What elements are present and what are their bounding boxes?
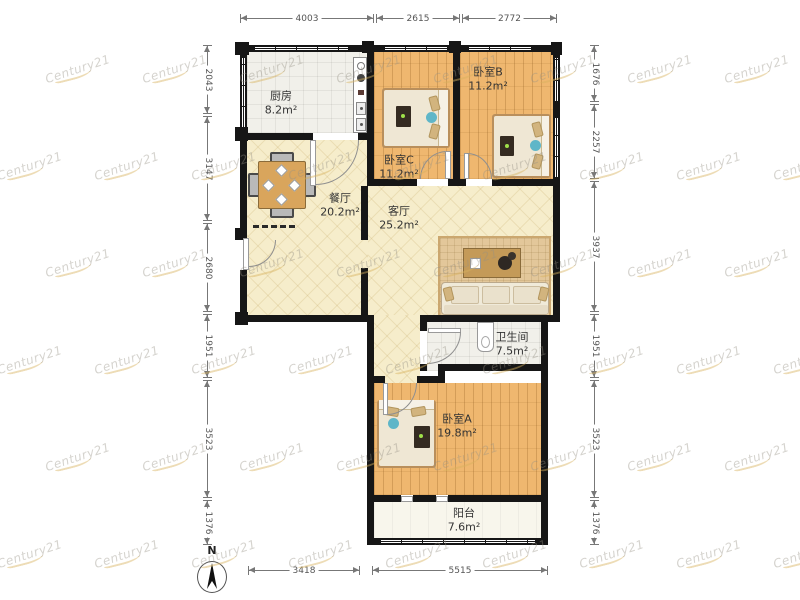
bed-tv-unit	[414, 426, 430, 448]
dim-right-5: 3523	[590, 380, 599, 498]
balcony-label: 阳台 7.6m²	[448, 507, 481, 536]
dim-bottom-1: 3418	[248, 566, 360, 575]
watermark-text: Century21	[189, 343, 258, 377]
bedroom-c-area: 11.2m²	[379, 168, 419, 182]
wall	[541, 315, 560, 322]
watermark-text: Century21	[674, 343, 743, 377]
table-decor	[508, 252, 516, 260]
sofa-cushion	[451, 286, 479, 304]
wall	[374, 376, 385, 383]
dim-value: 1951	[203, 332, 213, 361]
overhead-dashed-line	[253, 225, 295, 228]
watermark-text: Century21	[92, 537, 161, 571]
dim-value: 3418	[290, 566, 319, 576]
bathroom-label: 卫生间 7.5m²	[496, 331, 529, 360]
watermark-stamp: Century21	[43, 246, 112, 282]
sofa	[441, 282, 549, 315]
wall	[420, 364, 427, 371]
watermark-text: Century21	[771, 343, 800, 377]
sofa-cushion	[482, 286, 510, 304]
watermark-stamp: Century21	[189, 343, 258, 379]
watermark-text: Century21	[140, 246, 209, 280]
dim-left-6: 1376	[203, 500, 212, 545]
bed-accent	[388, 418, 399, 429]
bed-bedroom-c	[382, 88, 450, 148]
window-bedroom-b-right	[553, 118, 560, 178]
wall-pier	[235, 42, 249, 55]
dim-right-2: 2257	[590, 104, 599, 179]
watermark-text: Century21	[722, 246, 791, 280]
living-name: 客厅	[379, 205, 419, 219]
wall-pier	[235, 127, 248, 141]
counter-item	[358, 90, 364, 95]
watermark-text: Century21	[722, 440, 791, 474]
sink-faucet	[357, 62, 365, 70]
wall	[448, 495, 541, 502]
wall	[420, 315, 553, 322]
headboard	[541, 116, 549, 176]
dim-value: 5515	[446, 566, 475, 576]
watermark-text: Century21	[92, 149, 161, 183]
compass-circle	[197, 561, 227, 593]
watermark-stamp: Century21	[771, 149, 800, 185]
compass-north-label: N	[194, 544, 230, 557]
dim-value: 2772	[495, 14, 524, 24]
dining-label: 餐厅 20.2m²	[320, 192, 360, 221]
watermark-stamp: Century21	[43, 440, 112, 476]
watermark-stamp: Century21	[0, 343, 65, 379]
wall	[438, 364, 548, 371]
watermark-stamp: Century21	[674, 149, 743, 185]
watermark-stamp: Century21	[0, 149, 65, 185]
dim-left-4: 1951	[203, 314, 212, 378]
wall	[374, 495, 401, 502]
balcony-area: 7.6m²	[448, 521, 481, 535]
watermark-text: Century21	[674, 537, 743, 571]
dim-value: 3937	[590, 232, 600, 261]
floorplan-canvas: 厨房 8.2m² 卧室B 11.2m² 卧室C 11.2m² 餐厅 20.2m²…	[0, 0, 800, 600]
watermark-text: Century21	[771, 149, 800, 183]
bed-tv-unit	[500, 136, 514, 156]
dim-value: 2043	[203, 65, 213, 94]
watermark-text: Century21	[625, 52, 694, 86]
sofa-pillow	[537, 286, 549, 302]
watermark-stamp: Century21	[286, 343, 355, 379]
dim-right-6: 1376	[590, 500, 599, 545]
bedroom-c-name: 卧室C	[379, 154, 419, 168]
wall	[541, 322, 548, 545]
balcony-name: 阳台	[448, 507, 481, 521]
watermark-text: Century21	[43, 52, 112, 86]
watermark-stamp: Century21	[674, 537, 743, 573]
wall	[367, 45, 374, 179]
bathroom-basin	[477, 322, 494, 352]
watermark-stamp: Century21	[92, 537, 161, 573]
watermark-stamp: Century21	[140, 246, 209, 282]
watermark-stamp: Century21	[674, 343, 743, 379]
watermark-stamp: Century21	[140, 52, 209, 88]
dim-value: 3523	[203, 425, 213, 454]
bed-tv-unit	[396, 106, 411, 127]
watermark-text: Century21	[625, 440, 694, 474]
dim-left-1: 2043	[203, 45, 212, 114]
wall	[453, 52, 460, 179]
window-kitchen-left	[240, 58, 247, 128]
dining-table-set	[246, 150, 318, 220]
sink-bowl	[357, 74, 365, 82]
dim-value: 2615	[404, 14, 433, 24]
dim-left-5: 3523	[203, 380, 212, 498]
bedroom-c-label: 卧室C 11.2m²	[379, 154, 419, 183]
wall-pier	[235, 312, 248, 325]
bedroom-a-label: 卧室A 19.8m²	[437, 413, 477, 442]
wall-pier	[449, 41, 461, 53]
watermark-text: Century21	[286, 343, 355, 377]
wall	[240, 315, 374, 322]
wall	[361, 268, 368, 315]
balcony-slider-panel	[401, 496, 413, 502]
kitchen-area: 8.2m²	[265, 104, 298, 118]
dim-top-1: 4003	[240, 14, 374, 23]
wall-pier	[362, 41, 374, 53]
wall	[448, 179, 460, 186]
wall-pier	[551, 42, 562, 55]
wall	[460, 179, 466, 186]
headboard	[438, 90, 448, 146]
watermark-text: Century21	[674, 149, 743, 183]
watermark-text: Century21	[92, 343, 161, 377]
watermark-text: Century21	[0, 537, 64, 571]
watermark-stamp: Century21	[237, 440, 306, 476]
watermark-stamp: Century21	[43, 52, 112, 88]
bedroom-a-area: 19.8m²	[437, 427, 477, 441]
wall	[367, 315, 374, 545]
watermark-stamp: Century21	[771, 343, 800, 379]
bed-bedroom-b	[492, 114, 551, 178]
dim-value: 1951	[590, 332, 600, 361]
dim-right-1: 1676	[590, 45, 599, 102]
window-bedroom-c-top	[384, 45, 448, 52]
watermark-stamp: Century21	[92, 343, 161, 379]
bedroom-c-door-leaf	[445, 151, 451, 179]
wall	[358, 133, 367, 140]
table-decor	[470, 258, 481, 269]
watermark-stamp: Century21	[92, 149, 161, 185]
dim-value: 4003	[293, 14, 322, 24]
dim-top-2: 2615	[376, 14, 460, 23]
dim-value: 3523	[590, 425, 600, 454]
dim-right-3: 3937	[590, 181, 599, 312]
watermark-text: Century21	[140, 440, 209, 474]
corridor-floor	[374, 315, 420, 383]
watermark-stamp: Century21	[577, 149, 646, 185]
basin-bowl	[481, 336, 490, 348]
wall	[417, 376, 445, 383]
stove-burner	[356, 118, 366, 131]
watermark-stamp: Century21	[722, 246, 791, 282]
watermark-text: Century21	[722, 52, 791, 86]
watermark-stamp: Century21	[722, 440, 791, 476]
dim-left-3: 2680	[203, 223, 212, 312]
dim-value: 2680	[203, 253, 213, 282]
watermark-text: Century21	[0, 343, 64, 377]
bedroom-b-name: 卧室B	[468, 66, 508, 80]
window-bedroom-b-top	[468, 45, 532, 52]
kitchen-counter	[353, 57, 367, 133]
watermark-stamp: Century21	[625, 440, 694, 476]
wall	[240, 133, 313, 140]
watermark-text: Century21	[625, 246, 694, 280]
bathroom-area: 7.5m²	[496, 345, 529, 359]
watermark-stamp: Century21	[577, 343, 646, 379]
watermark-text: Century21	[771, 537, 800, 571]
bathroom-name: 卫生间	[496, 331, 529, 345]
north-arrow-icon	[198, 562, 226, 592]
dining-area: 20.2m²	[320, 206, 360, 220]
dim-bottom-2: 5515	[372, 566, 548, 575]
living-label: 客厅 25.2m²	[379, 205, 419, 234]
bedroom-a-name: 卧室A	[437, 413, 477, 427]
watermark-text: Century21	[237, 440, 306, 474]
dim-value: 1376	[203, 508, 213, 537]
sofa-back	[444, 305, 548, 314]
watermark-stamp: Century21	[722, 52, 791, 88]
watermark-stamp: Century21	[771, 537, 800, 573]
stove-burner	[356, 102, 366, 115]
watermark-stamp: Century21	[0, 537, 65, 573]
north-compass: N	[194, 544, 230, 598]
dim-value: 1676	[590, 59, 600, 88]
wall	[420, 322, 427, 331]
bedroom-b-label: 卧室B 11.2m²	[468, 66, 508, 95]
wall	[361, 186, 368, 240]
window-bedroom-b-right	[553, 58, 560, 102]
window-balcony	[380, 538, 535, 545]
watermark-text: Century21	[577, 149, 646, 183]
bedroom-b-area: 11.2m²	[468, 80, 508, 94]
watermark-text: Century21	[577, 537, 646, 571]
dim-top-3: 2772	[462, 14, 557, 23]
dim-value: 1376	[590, 508, 600, 537]
watermark-stamp: Century21	[625, 246, 694, 282]
living-area: 25.2m²	[379, 219, 419, 233]
watermark-text: Century21	[43, 246, 112, 280]
bed-accent	[426, 112, 437, 123]
watermark-text: Century21	[0, 149, 64, 183]
coffee-table	[463, 248, 521, 278]
watermark-stamp: Century21	[577, 537, 646, 573]
dim-value: 2257	[590, 127, 600, 156]
kitchen-label: 厨房 8.2m²	[265, 90, 298, 119]
window-kitchen-top	[254, 45, 348, 52]
watermark-stamp: Century21	[140, 440, 209, 476]
dining-name: 餐厅	[320, 192, 360, 206]
bed-accent	[530, 140, 541, 151]
dim-value: 3147	[203, 154, 213, 183]
wall	[413, 495, 436, 502]
watermark-text: Century21	[140, 52, 209, 86]
kitchen-name: 厨房	[265, 90, 298, 104]
wall	[492, 179, 560, 186]
watermark-stamp: Century21	[625, 52, 694, 88]
watermark-text: Century21	[577, 343, 646, 377]
dim-left-2: 3147	[203, 116, 212, 221]
watermark-text: Century21	[43, 440, 112, 474]
dim-right-4: 1951	[590, 314, 599, 378]
balcony-slider-panel	[436, 496, 448, 502]
sofa-cushion	[513, 286, 541, 304]
